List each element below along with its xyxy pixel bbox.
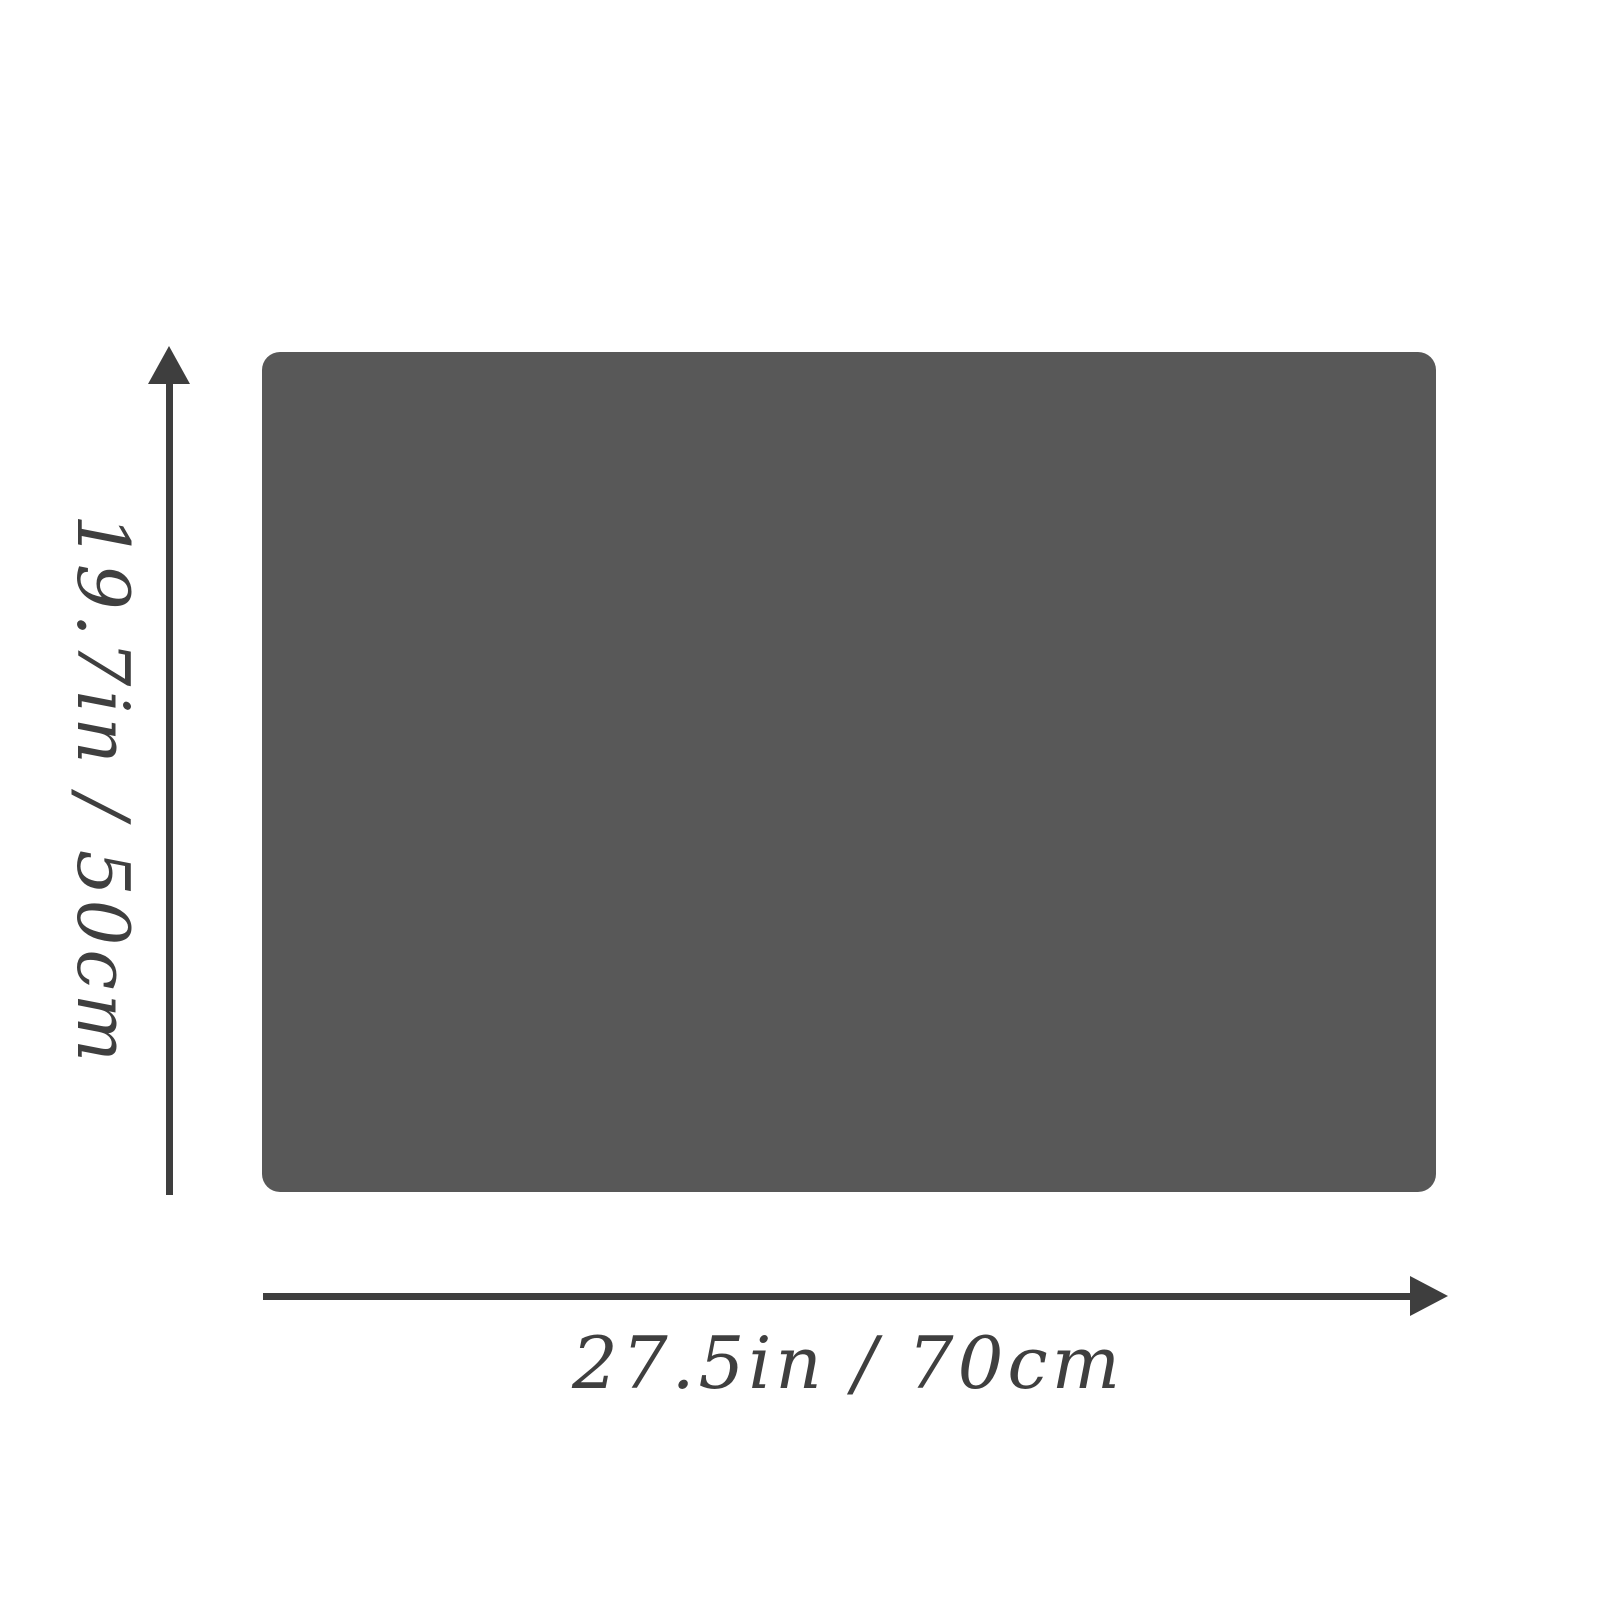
height-dimension-label: 19.7in / 50cm [67,514,139,1066]
product-mat-image [262,352,1436,1192]
product-dimension-diagram: 19.7in / 50cm 27.5in / 70cm [0,0,1600,1600]
width-dimension-label: 27.5in / 70cm [572,1327,1124,1399]
horizontal-dimension-line [263,1293,1411,1300]
arrow-right-icon [1410,1276,1448,1316]
vertical-dimension-line [166,382,173,1195]
arrow-up-icon [148,346,190,384]
